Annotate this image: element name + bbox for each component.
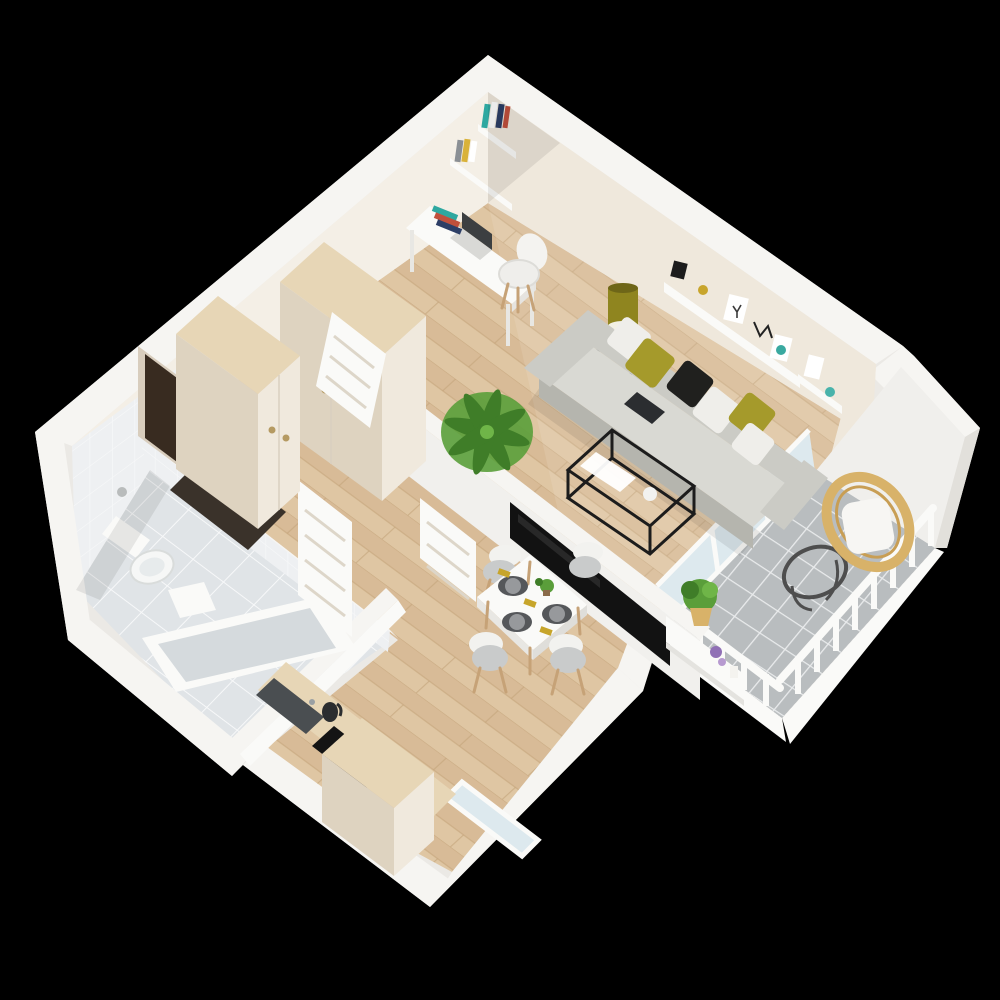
teal-vase (825, 387, 835, 397)
chair-seat (550, 647, 586, 673)
candle (730, 666, 738, 678)
seat-cushion (840, 496, 896, 556)
desk-chair-seat (499, 260, 539, 288)
palm-center (480, 425, 494, 439)
floor-plan-render (0, 0, 1000, 1000)
toilet-paper-holder (117, 487, 127, 497)
purple-flowers (710, 646, 722, 658)
chair-seat (569, 556, 601, 578)
wardrobe-small-handle2 (283, 435, 290, 442)
purple-flowers-2 (718, 658, 726, 666)
chair-seat (472, 645, 508, 671)
apartment-scene (0, 0, 1000, 1000)
lamp-shade-top (608, 283, 638, 293)
wardrobe-small-handle (269, 427, 276, 434)
kitchen-faucet (309, 699, 315, 705)
gold-bowl (698, 285, 708, 295)
vase (643, 487, 657, 501)
books-lower (454, 139, 477, 163)
